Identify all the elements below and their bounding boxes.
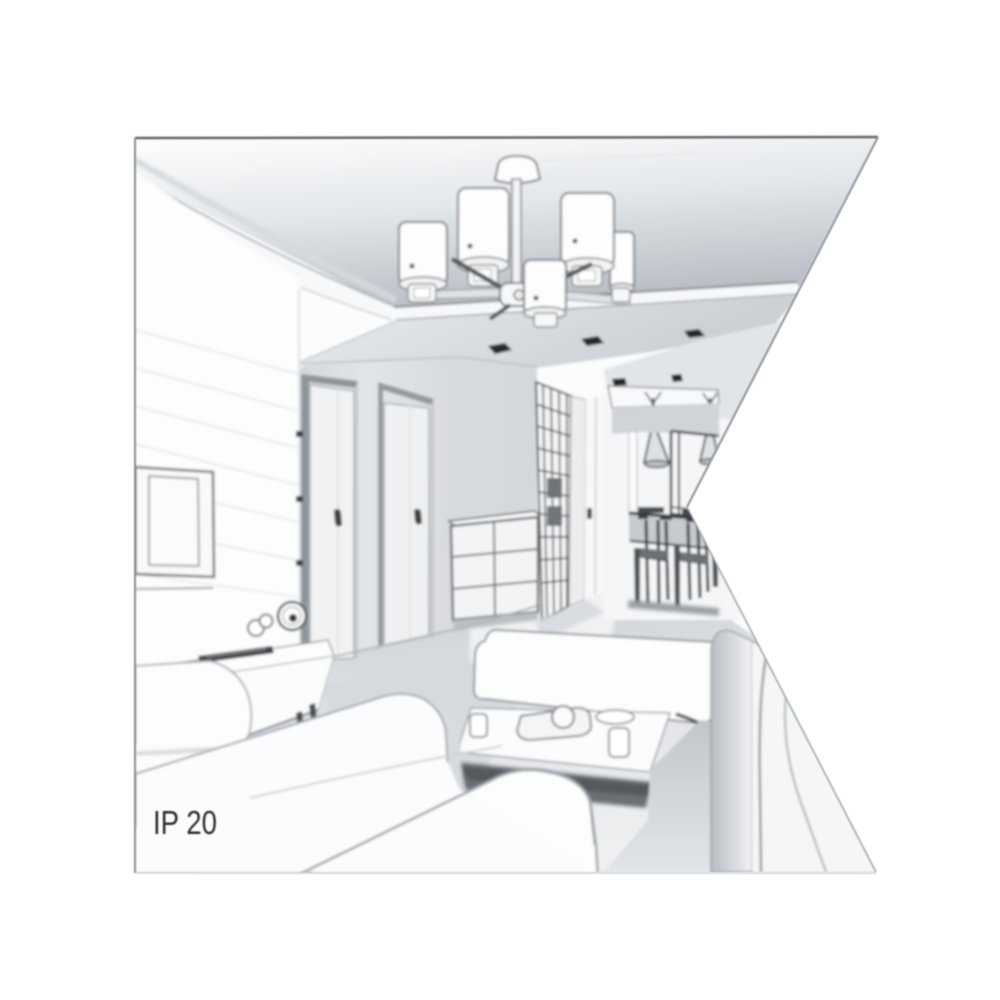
svg-text:IP 20: IP 20: [153, 804, 217, 841]
